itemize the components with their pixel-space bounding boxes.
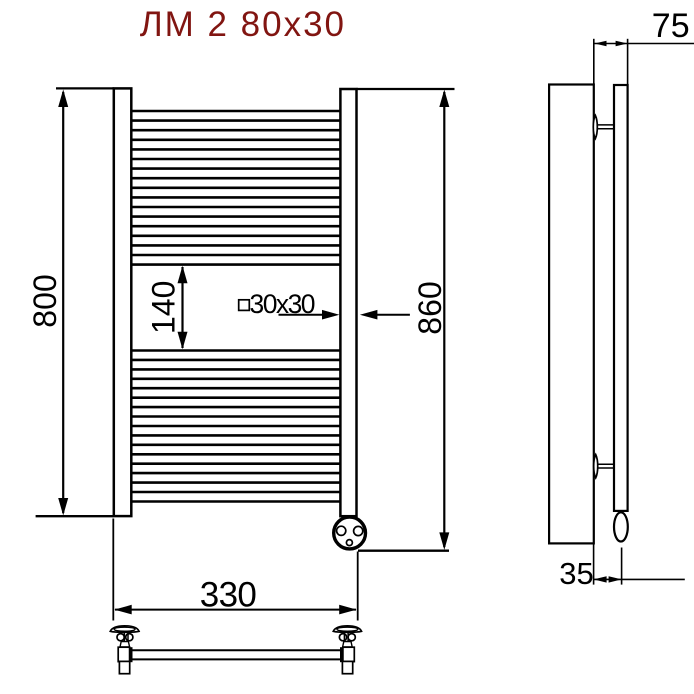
svg-text:330: 330 [200,576,257,615]
svg-text:800: 800 [27,274,63,328]
svg-text:75: 75 [652,7,690,45]
svg-text:860: 860 [412,281,448,335]
svg-text:140: 140 [145,281,181,335]
svg-text:35: 35 [559,556,593,591]
svg-text:ЛМ 2 80x30: ЛМ 2 80x30 [140,5,344,44]
